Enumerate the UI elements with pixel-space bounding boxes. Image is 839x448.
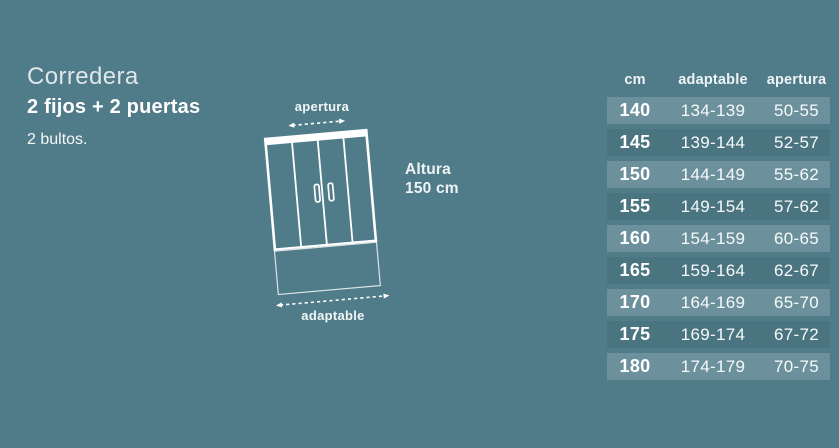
apertura-cell: 55-62 — [774, 165, 819, 185]
column-header-adaptable: adaptable — [678, 72, 748, 88]
size-cell: 180 — [620, 356, 651, 377]
adaptable-cell: 174-179 — [681, 357, 746, 377]
size-cell: 160 — [620, 228, 651, 249]
title-block: Corredera 2 fijos + 2 puertas 2 bultos. — [27, 63, 200, 149]
packages-note: 2 bultos. — [27, 131, 200, 149]
adaptable-cell: 159-164 — [681, 261, 746, 281]
apertura-cell: 67-72 — [774, 325, 819, 345]
height-value: 150 cm — [405, 179, 459, 198]
door-top-rail — [264, 129, 368, 146]
adaptable-cell: 139-144 — [681, 133, 746, 153]
product-sheet: Corredera 2 fijos + 2 puertas 2 bultos. … — [0, 0, 839, 448]
door-bottom-rail — [273, 239, 377, 250]
adaptable-cell: 169-174 — [681, 325, 746, 345]
height-label: Altura — [405, 160, 459, 179]
table-row: 160 154-159 60-65 — [607, 225, 830, 252]
size-cell: 150 — [620, 164, 651, 185]
adaptable-arrow — [276, 293, 390, 308]
size-cell: 165 — [620, 260, 651, 281]
door-panels — [264, 136, 377, 251]
adaptable-panel — [275, 242, 381, 294]
table-row: 175 169-174 67-72 — [607, 321, 830, 348]
adaptable-cell: 144-149 — [681, 165, 746, 185]
size-table: cm adaptable apertura 140 134-139 50-55 … — [607, 70, 830, 385]
table-row: 180 174-179 70-75 — [607, 353, 830, 380]
adaptable-cell: 134-139 — [681, 101, 746, 121]
size-cell: 145 — [620, 132, 651, 153]
table-row: 155 149-154 57-62 — [607, 193, 830, 220]
adaptable-cell: 149-154 — [681, 197, 746, 217]
column-header-cm: cm — [624, 72, 645, 88]
table-row: 165 159-164 62-67 — [607, 257, 830, 284]
table-row: 150 144-149 55-62 — [607, 161, 830, 188]
height-annotation: Altura 150 cm — [405, 160, 459, 198]
table-header-row: cm adaptable apertura — [607, 70, 830, 90]
door-handles-icon — [314, 183, 334, 202]
product-subtitle: 2 fijos + 2 puertas — [27, 94, 200, 120]
apertura-cell: 50-55 — [774, 101, 819, 121]
adaptable-cell: 154-159 — [681, 229, 746, 249]
size-cell: 175 — [620, 324, 651, 345]
apertura-cell: 52-57 — [774, 133, 819, 153]
table-row: 145 139-144 52-57 — [607, 129, 830, 156]
apertura-cell: 62-67 — [774, 261, 819, 281]
size-cell: 170 — [620, 292, 651, 313]
apertura-cell: 60-65 — [774, 229, 819, 249]
apertura-cell: 70-75 — [774, 357, 819, 377]
apertura-cell: 65-70 — [774, 293, 819, 313]
sliding-door-diagram — [253, 92, 403, 327]
table-row: 140 134-139 50-55 — [607, 97, 830, 124]
table-row: 170 164-169 65-70 — [607, 289, 830, 316]
size-cell: 140 — [620, 100, 651, 121]
column-header-apertura: apertura — [767, 72, 827, 88]
opening-arrow — [288, 118, 345, 128]
size-cell: 155 — [620, 196, 651, 217]
adaptable-cell: 164-169 — [681, 293, 746, 313]
apertura-cell: 57-62 — [774, 197, 819, 217]
page-title: Corredera — [27, 63, 200, 91]
